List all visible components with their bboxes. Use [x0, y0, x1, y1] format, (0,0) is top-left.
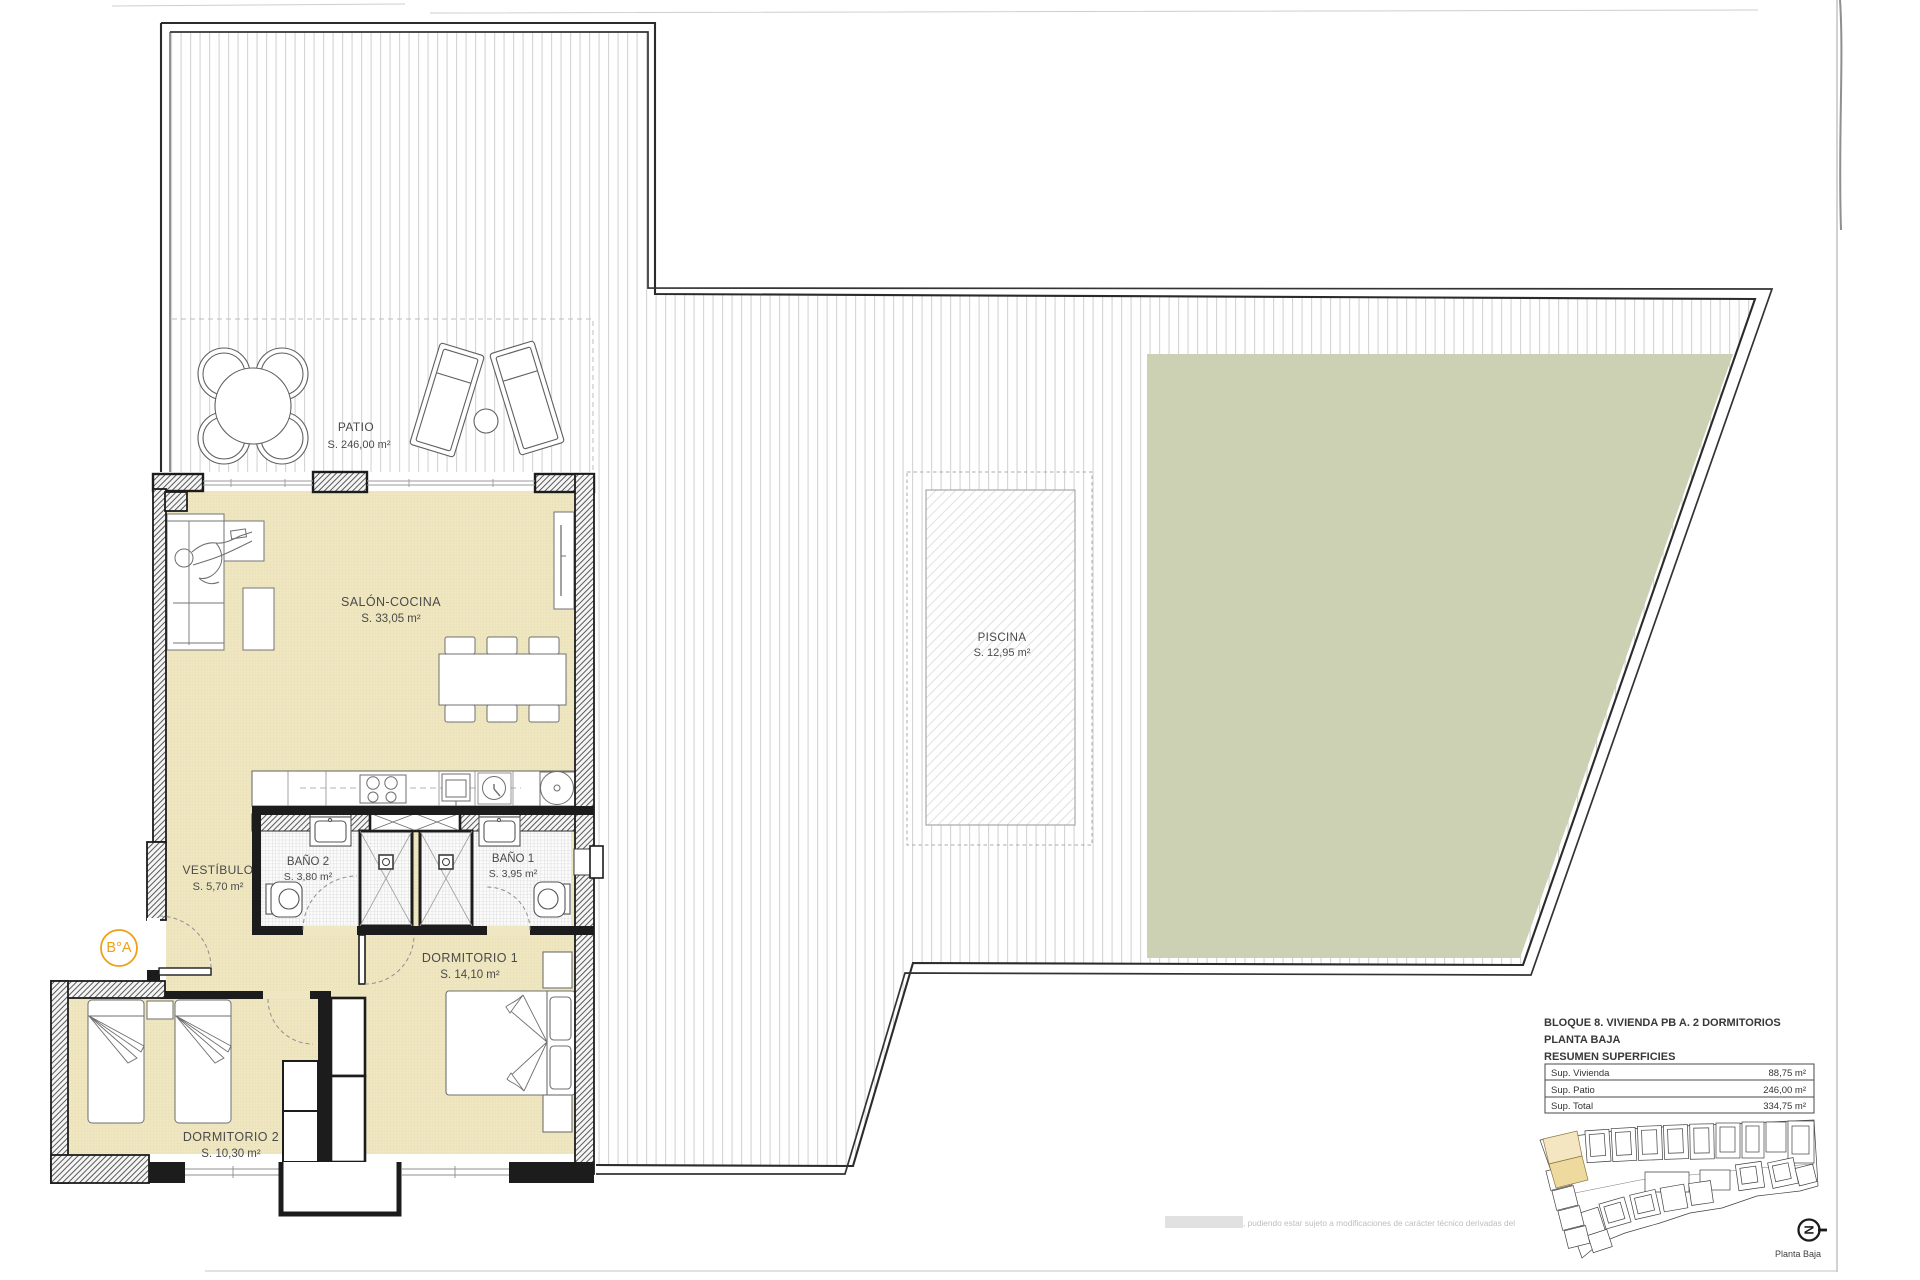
svg-text:S. 10,30 m²: S. 10,30 m² [201, 1148, 261, 1160]
svg-text:RESUMEN SUPERFICIES: RESUMEN SUPERFICIES [1544, 1051, 1675, 1063]
svg-text:DORMITORIO 1: DORMITORIO 1 [422, 951, 518, 965]
svg-text:S. 5,70 m²: S. 5,70 m² [193, 881, 244, 893]
svg-text:DORMITORIO 2: DORMITORIO 2 [183, 1130, 279, 1144]
svg-text:, pudiendo estar sujeto a modi: , pudiendo estar sujeto a modificaciones… [1243, 1218, 1515, 1228]
svg-text:334,75 m²: 334,75 m² [1763, 1101, 1806, 1112]
svg-text:VESTÍBULO: VESTÍBULO [183, 862, 254, 877]
svg-text:SALÓN-COCINA: SALÓN-COCINA [341, 594, 441, 609]
svg-text:88,75 m²: 88,75 m² [1769, 1068, 1807, 1079]
svg-text:Sup. Total: Sup. Total [1551, 1101, 1593, 1112]
svg-text:S. 14,10 m²: S. 14,10 m² [440, 969, 500, 981]
svg-text:Sup. Patio: Sup. Patio [1551, 1085, 1595, 1096]
svg-text:BLOQUE 8. VIVIENDA PB A. 2 DOR: BLOQUE 8. VIVIENDA PB A. 2 DORMITORIOS [1544, 1017, 1781, 1029]
svg-text:PISCINA: PISCINA [978, 632, 1027, 644]
svg-text:S. 3,95 m²: S. 3,95 m² [489, 868, 538, 880]
svg-text:PATIO: PATIO [338, 420, 374, 434]
svg-text:N: N [1802, 1225, 1817, 1234]
svg-text:246,00 m²: 246,00 m² [1763, 1085, 1806, 1096]
svg-text:BAÑO 2: BAÑO 2 [287, 855, 329, 868]
svg-text:S. 246,00 m²: S. 246,00 m² [328, 439, 391, 451]
svg-text:S. 12,95 m²: S. 12,95 m² [974, 647, 1031, 659]
svg-text:Planta Baja: Planta Baja [1775, 1249, 1821, 1259]
svg-text:S. 33,05 m²: S. 33,05 m² [361, 613, 421, 625]
svg-text:B°A: B°A [106, 940, 131, 956]
svg-text:S. 3,80 m²: S. 3,80 m² [284, 871, 333, 883]
svg-text:BAÑO 1: BAÑO 1 [492, 852, 534, 865]
svg-text:Sup. Vivienda: Sup. Vivienda [1551, 1068, 1610, 1079]
svg-text:PLANTA BAJA: PLANTA BAJA [1544, 1034, 1620, 1046]
